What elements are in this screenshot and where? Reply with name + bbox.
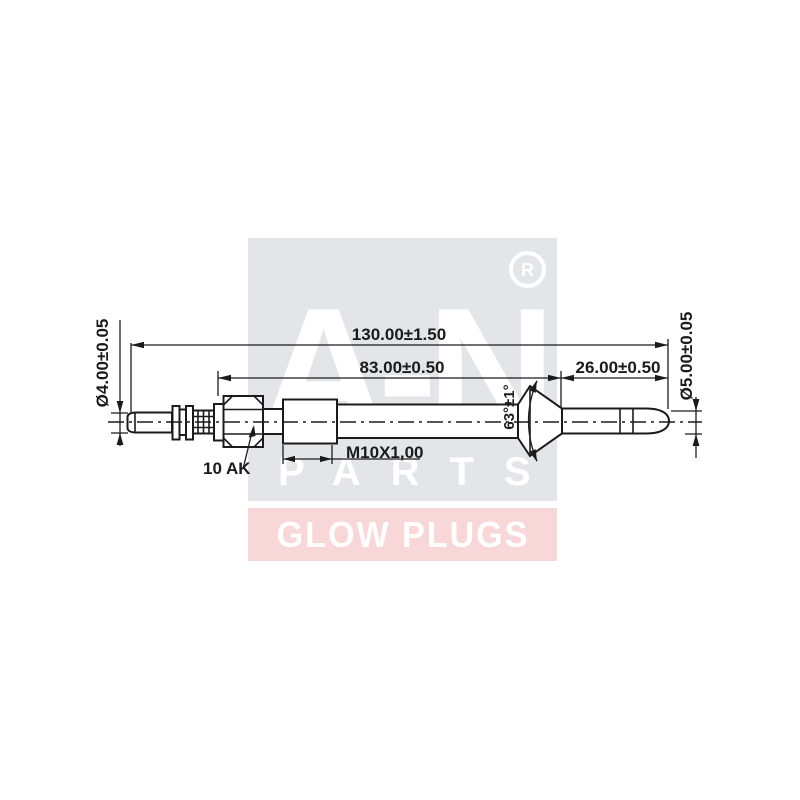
glow-plug-technical-drawing: 130.00±1.50 83.00±0.50 26.00±0.50 M10X1,… [0,0,800,800]
label-hex-size: 10 AK [203,459,251,478]
dimension-labels: 130.00±1.50 83.00±0.50 26.00±0.50 M10X1,… [93,312,696,478]
insulator-ring [173,406,180,440]
shaft [337,405,518,439]
label-overall-length: 130.00±1.50 [352,325,446,344]
label-probe-length: 26.00±0.50 [576,358,661,377]
label-body-length: 83.00±0.50 [360,358,445,377]
label-thread-spec: M10X1,00 [346,443,424,462]
label-seat-angle: 63°±1° [501,384,518,429]
label-terminal-diameter: Ø4.00±0.05 [93,319,112,408]
heater-probe [562,409,669,434]
label-probe-diameter: Ø5.00±0.05 [677,312,696,401]
insulator-ring [186,406,193,440]
sealing-cone [518,386,562,456]
glow-plug-diagram-page: R A-N PARTS GLOW PLUGS [0,0,800,800]
